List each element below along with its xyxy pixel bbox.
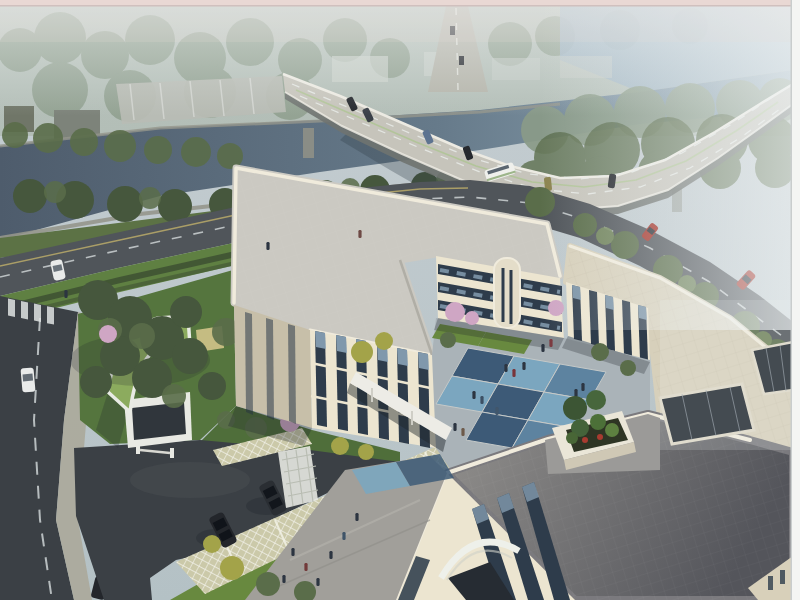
rendering-canvas — [0, 0, 800, 600]
blossom-tree — [445, 302, 465, 322]
architectural-rendering — [0, 0, 800, 600]
right-fog-lower — [660, 300, 793, 450]
blossom-tree — [99, 325, 117, 343]
white-car — [20, 367, 35, 392]
rounded-stair-tower — [494, 258, 520, 328]
bridge-pier — [303, 128, 314, 158]
gate-opening — [132, 402, 186, 440]
top-frame-strip — [0, 0, 800, 5]
right-frame-strip — [792, 0, 800, 600]
right-frame-line — [791, 0, 793, 600]
right-fog — [540, 0, 793, 330]
top-frame-line — [0, 5, 800, 7]
yellow-tree — [220, 556, 244, 580]
